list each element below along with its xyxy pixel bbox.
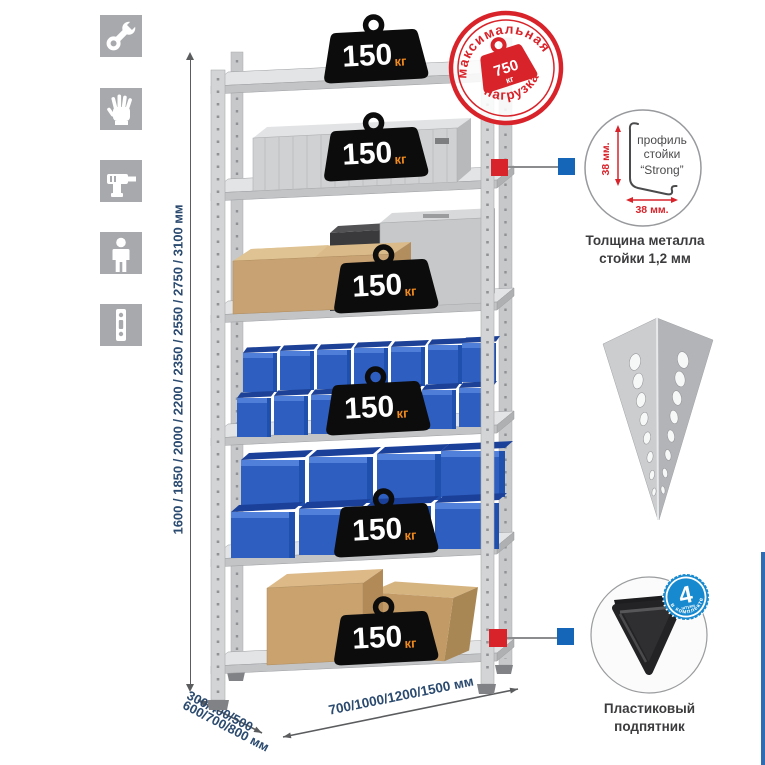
svg-text:профиль: профиль — [637, 133, 687, 147]
svg-text:150: 150 — [351, 512, 403, 548]
person-icon-tile — [100, 232, 142, 274]
shelf-load-badges: 150кг 150кг 150кг 150кг 150кг 150кг — [321, 14, 438, 665]
post-profile-icon-tile — [100, 304, 142, 346]
page-edge-strip — [761, 552, 765, 765]
profile-caption: Толщина металла стойки 1,2 мм — [570, 232, 720, 268]
svg-text:кг: кг — [396, 405, 409, 421]
wrench-icon — [100, 15, 142, 57]
max-load-stamp: максимальная нагрузка 750 кг — [438, 2, 574, 134]
drill-icon — [100, 160, 142, 202]
person-icon — [100, 232, 142, 274]
foot-callout-blue-marker — [557, 628, 574, 645]
wrench-icon-tile — [100, 15, 142, 57]
profile-label: профиль стойки “Strong” — [637, 133, 687, 177]
svg-text:кг: кг — [394, 53, 407, 69]
svg-text:“Strong”: “Strong” — [640, 163, 683, 177]
angle-post-image — [595, 302, 730, 524]
post-profile-diagram: 38 мм. 38 мм. профиль стойки “Strong” — [578, 102, 710, 234]
svg-text:150: 150 — [341, 136, 393, 172]
foot-caption: Пластиковый подпятник — [582, 700, 717, 736]
foot-callout-line — [504, 637, 559, 639]
height-dimension-label: 1600 / 1850 / 2000 / 2200 / 2350 / 2550 … — [171, 160, 186, 580]
svg-text:150: 150 — [351, 620, 403, 656]
height-arrow-up — [186, 52, 194, 60]
svg-text:кг: кг — [394, 151, 407, 167]
quantity-badge: 4 штуки в комплекте — [661, 572, 711, 622]
profile-callout-red-marker — [491, 159, 508, 176]
weight-badge: 150кг — [321, 14, 428, 83]
svg-text:150: 150 — [351, 268, 403, 304]
profile-callout-line — [505, 166, 560, 168]
drill-icon-tile — [100, 160, 142, 202]
svg-text:стойки: стойки — [644, 147, 681, 161]
foot-callout-red-marker — [489, 629, 507, 647]
product-infographic: 1600 / 1850 / 2000 / 2200 / 2350 / 2550 … — [0, 0, 765, 765]
svg-text:кг: кг — [404, 635, 417, 651]
height-dimension-line — [190, 56, 191, 688]
profile-dim-horizontal: 38 мм. — [635, 204, 668, 216]
svg-text:150: 150 — [341, 38, 393, 74]
post-profile-icon — [100, 304, 142, 346]
svg-text:кг: кг — [404, 527, 417, 543]
gloves-icon — [100, 88, 142, 130]
profile-callout-blue-marker — [558, 158, 575, 175]
svg-text:кг: кг — [404, 283, 417, 299]
svg-text:150: 150 — [343, 390, 395, 426]
gloves-icon-tile — [100, 88, 142, 130]
profile-dim-vertical: 38 мм. — [600, 142, 612, 175]
